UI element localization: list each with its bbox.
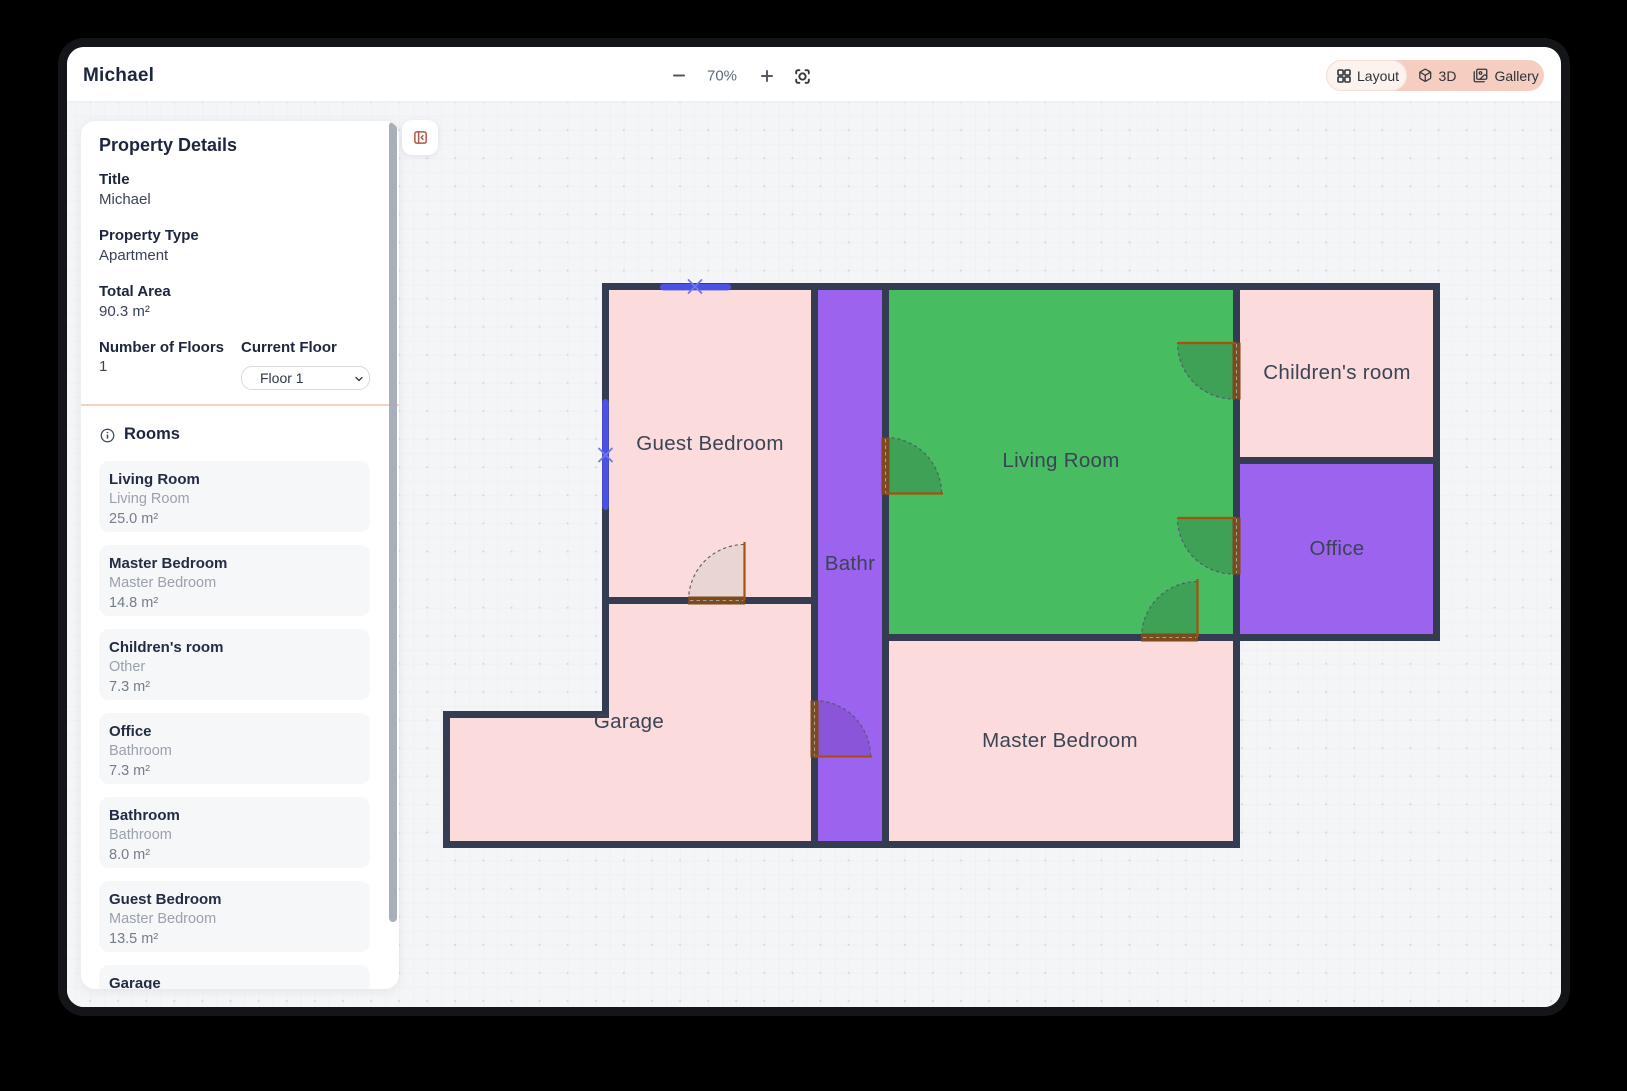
svg-text:Guest Bedroom: Guest Bedroom [636,432,783,455]
svg-text:Garage: Garage [594,710,664,733]
svg-text:Bathr: Bathr [825,552,876,575]
svg-text:Living Room: Living Room [1002,449,1119,472]
svg-text:Office: Office [1310,537,1365,560]
svg-text:Children's room: Children's room [1263,361,1410,384]
svg-text:Master Bedroom: Master Bedroom [982,729,1138,752]
